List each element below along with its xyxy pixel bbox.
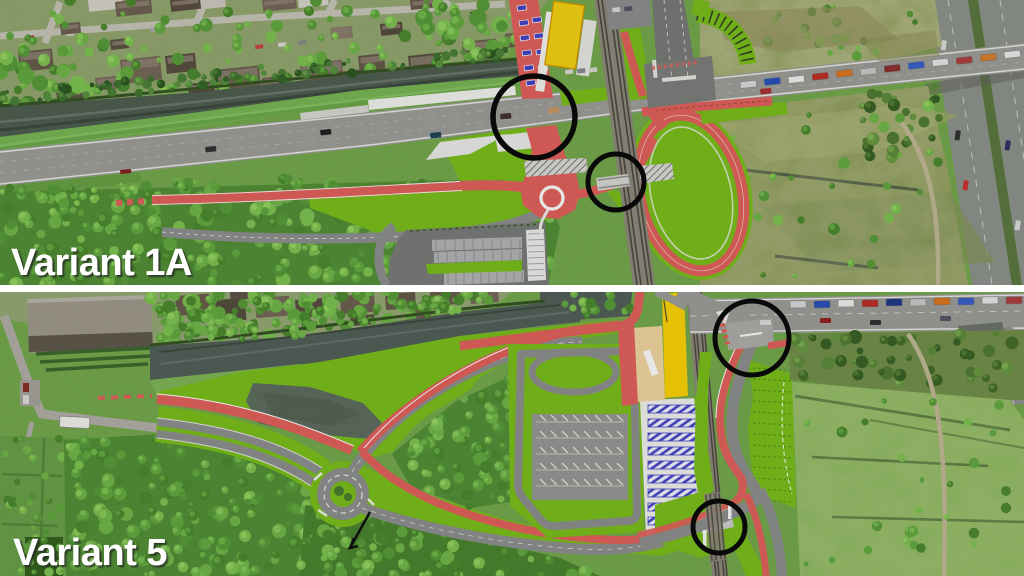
svg-text:Variant 1A: Variant 1A	[11, 242, 192, 284]
svg-text:Variant 5: Variant 5	[13, 532, 167, 574]
